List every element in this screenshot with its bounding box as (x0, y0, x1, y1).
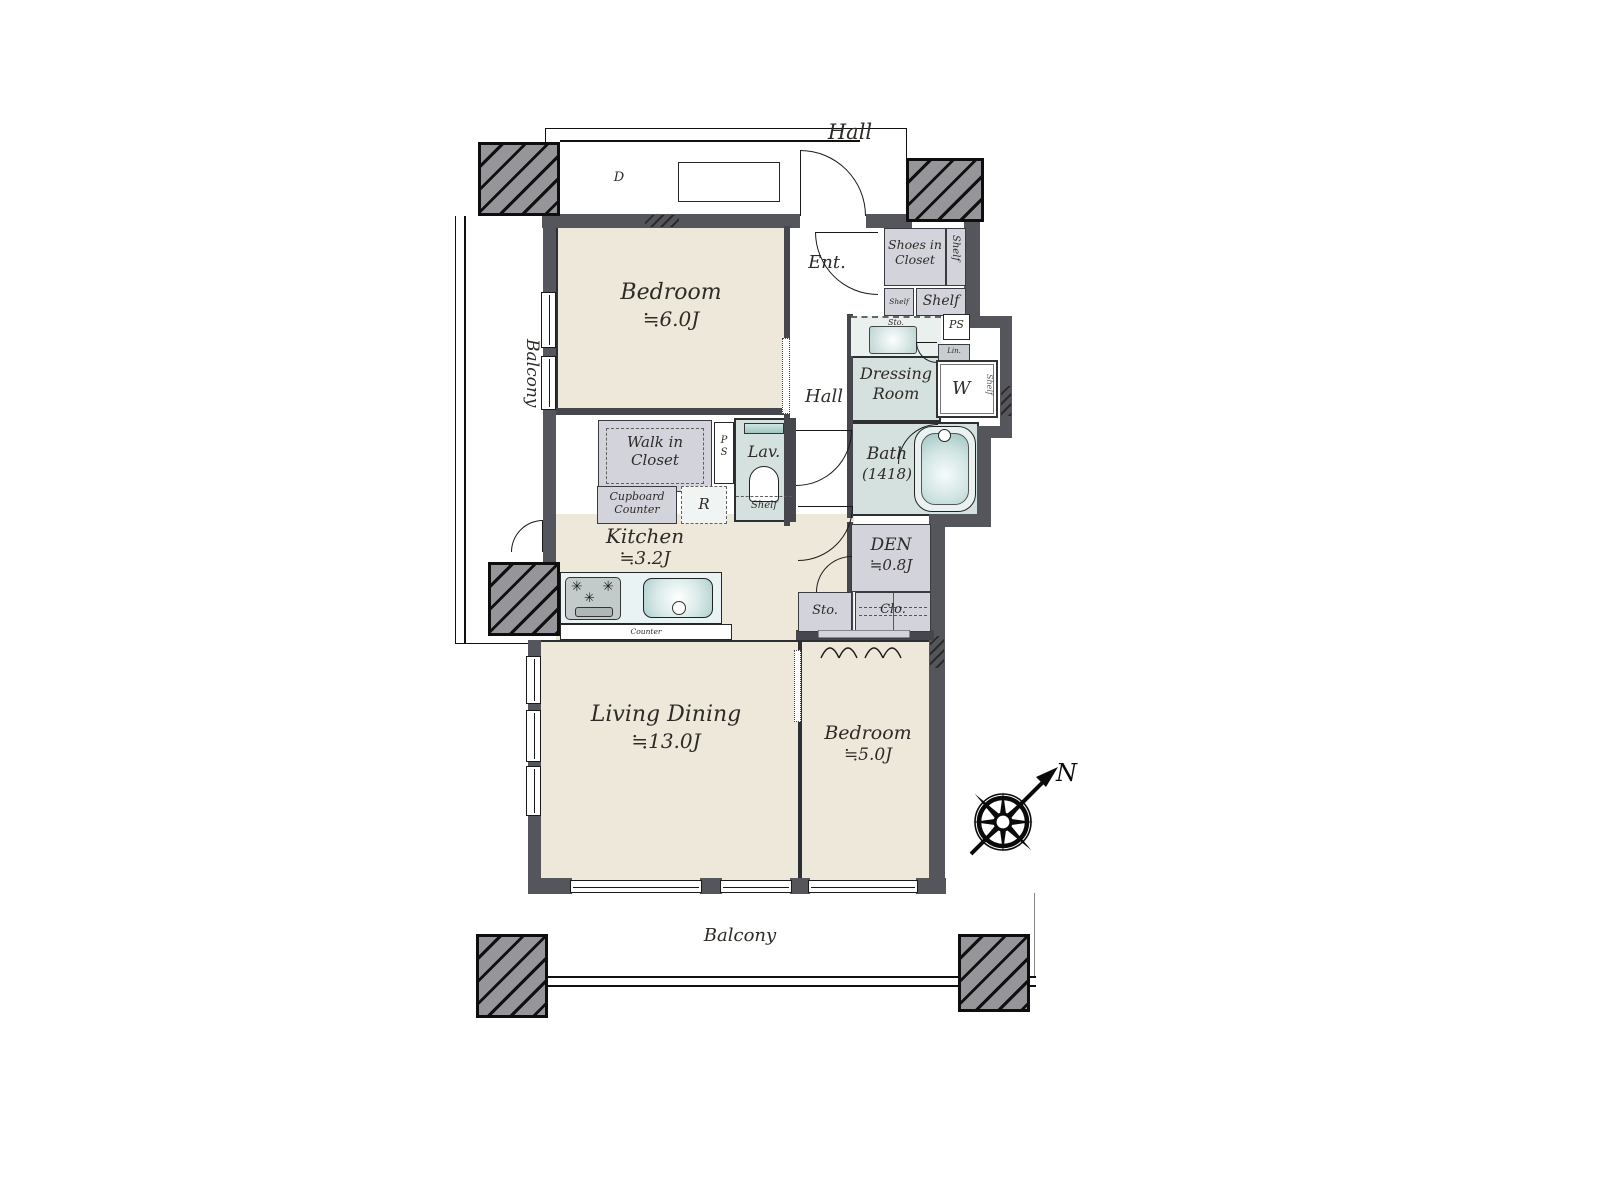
floor-plan: D Hall Balcony Balcony (0, 0, 1600, 1200)
wall-segment (528, 878, 572, 894)
balcony-left-label: Balcony (516, 318, 542, 428)
counter-label: Counter (561, 627, 731, 636)
balcony-left-rail (464, 216, 466, 644)
pillar (958, 934, 1030, 1012)
linen-closet-label: Lin. (939, 347, 969, 356)
shoes-in-closet: Shoes in Closet (884, 228, 946, 286)
wall-segment (700, 878, 722, 894)
pillar (478, 142, 560, 216)
living-dining-size-label: ≒13.0J (556, 729, 776, 753)
shelf-side: Shelf (946, 228, 966, 286)
linen-closet: Lin. (938, 344, 970, 361)
closet: Clo. (855, 592, 931, 632)
den-label: DEN (852, 535, 930, 556)
window (541, 356, 556, 410)
shelf-small-label: Shelf (885, 297, 913, 306)
pillar (476, 934, 548, 1018)
washer-shelf-label: Shelf (984, 374, 994, 395)
bedroom-main-label: Bedroom (586, 280, 756, 307)
pipe-shaft-mid-s: S (715, 447, 733, 459)
shoes-in-closet-label: Shoes in Closet (888, 237, 942, 268)
hall-top-label: Hall (810, 120, 890, 146)
kitchen-counter-unit: ✳ ✳ ✳ (560, 572, 722, 624)
vent-hatch (930, 636, 944, 668)
lav-shelf-label: Shelf (738, 500, 790, 512)
walk-in-closet-label2: Closet (599, 451, 711, 469)
pipe-shaft-top: PS (943, 314, 970, 340)
sliding-door (782, 338, 790, 414)
hall-inner-label: Hall (794, 386, 854, 408)
pipe-shaft-top-label: PS (944, 318, 969, 331)
compass-rose: N (950, 755, 1100, 875)
washer-box: W Shelf (936, 360, 998, 418)
wall-segment (916, 878, 946, 894)
wall-segment (977, 426, 991, 524)
wall-segment (543, 505, 556, 567)
den: DEN ≒0.8J (851, 524, 931, 592)
storage: Sto. (798, 592, 852, 632)
den-size-label: ≒0.8J (852, 556, 930, 574)
living-dining (530, 640, 800, 882)
north-label: N (1055, 759, 1078, 787)
delivery-box-label: D (604, 170, 634, 186)
sliding-door (794, 650, 801, 722)
cupboard-counter: Cupboard Counter (597, 486, 677, 524)
window (720, 880, 792, 893)
walk-in-closet: Walk in Closet (598, 420, 712, 492)
window (570, 880, 702, 893)
bedroom-main-size-label: ≒6.0J (586, 307, 756, 331)
window (526, 656, 541, 704)
pillar (488, 562, 560, 636)
bath-size-label: (1418) (856, 465, 918, 483)
bifold-closet-doors (818, 630, 910, 660)
closet-label: Clo. (856, 602, 930, 618)
window (526, 710, 541, 762)
vent-hatch (1001, 386, 1011, 416)
pipe-shaft-mid: P S (714, 422, 734, 484)
fridge-space: R (681, 486, 727, 524)
living-dining-label: Living Dining (556, 702, 776, 729)
sink-icon (643, 578, 713, 618)
window (526, 766, 541, 816)
washing-machine-icon (869, 326, 917, 354)
dressing-room-label2: Room (851, 384, 941, 404)
shelf-wide: Shelf (916, 288, 966, 316)
kitchen-size-label: ≒3.2J (580, 548, 710, 570)
lav-label: Lav. (738, 442, 790, 462)
dressing-room-label1: Dressing (851, 364, 941, 384)
balcony-bottom-label: Balcony (680, 925, 800, 947)
fridge-label: R (682, 495, 726, 513)
wall-segment (929, 514, 945, 886)
vent-hatch (645, 215, 679, 227)
wall-segment (556, 408, 788, 415)
pipe-shaft-mid-p: P (715, 435, 733, 447)
window (541, 292, 556, 348)
lav-window (744, 423, 784, 434)
window (808, 880, 918, 893)
kitchen-label: Kitchen (580, 524, 710, 548)
shelf-small: Shelf (884, 288, 914, 316)
wall-segment (1000, 316, 1012, 438)
washer-label: W (938, 378, 984, 400)
kitchen-counter-strip: Counter (560, 624, 732, 640)
pillar (906, 158, 984, 222)
cupboard-label1: Cupboard (598, 490, 676, 503)
bedroom-second-size-label: ≒5.0J (812, 745, 924, 766)
shelf-side-label: Shelf (949, 235, 961, 261)
wall-segment (790, 878, 810, 894)
storage-label: Sto. (799, 603, 851, 619)
bedroom-second-label: Bedroom (812, 722, 924, 745)
walk-in-closet-label1: Walk in (599, 433, 711, 451)
cupboard-label2: Counter (598, 503, 676, 516)
shelf-wide-label: Shelf (917, 293, 965, 310)
stove-icon: ✳ ✳ ✳ (565, 577, 621, 620)
wall-segment (964, 218, 980, 328)
delivery-box-outline (678, 162, 780, 202)
lav-shelf-divider (736, 496, 792, 497)
